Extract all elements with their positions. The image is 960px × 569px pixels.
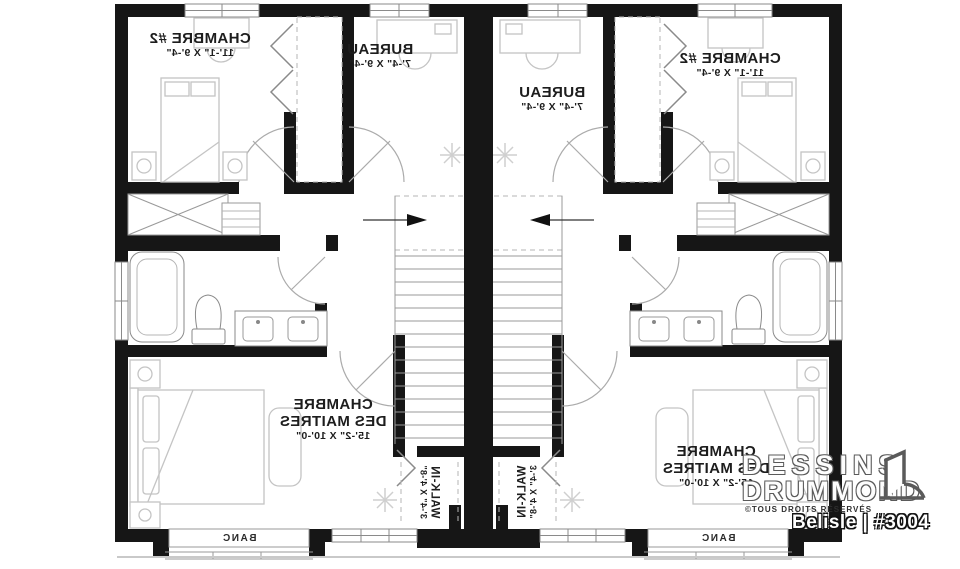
unit-geometry-b	[115, 4, 479, 559]
party-wall	[464, 4, 493, 548]
floor-plan-page: CHAMBRE #2 11'-1" X 9'-4" CHAMBRE #2 11'…	[0, 0, 960, 569]
unit-geometry-a	[478, 4, 842, 559]
floor-plan-drawing	[0, 0, 960, 569]
mirrored-plan-container: CHAMBRE #2 11'-1" X 9'-4" CHAMBRE #2 11'…	[0, 0, 960, 569]
